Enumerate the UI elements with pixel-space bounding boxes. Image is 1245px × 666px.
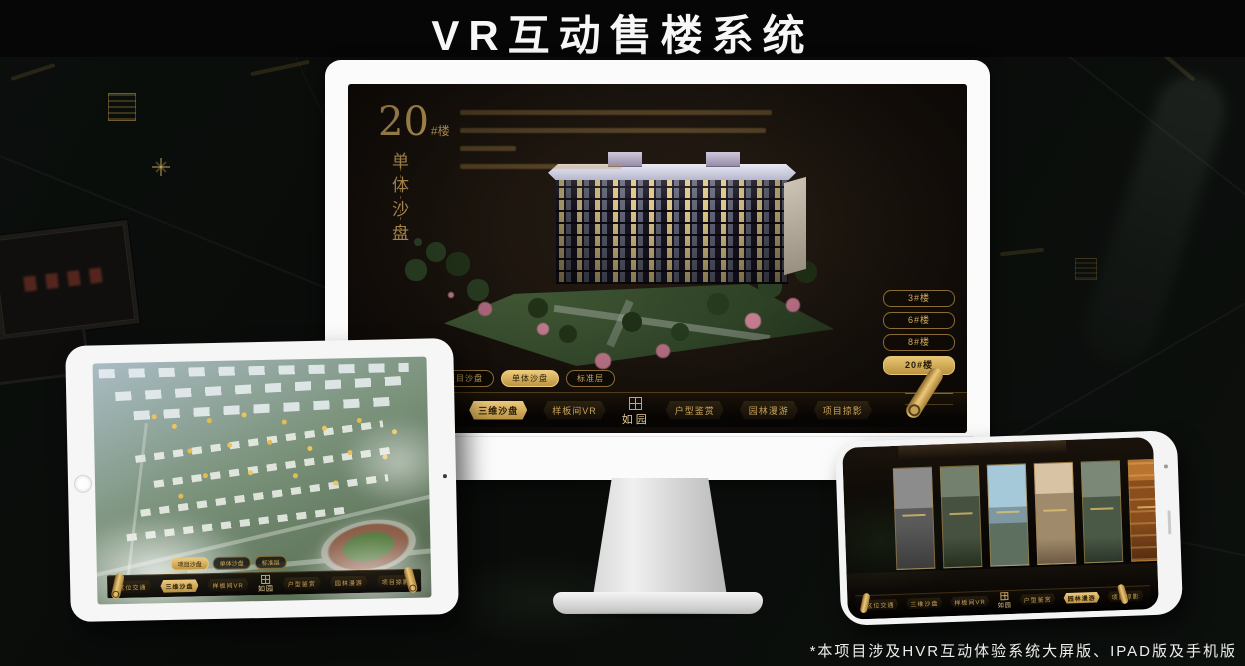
description-paragraph [460, 110, 772, 182]
phone-camera-dot [1164, 464, 1168, 468]
gallery-panel[interactable] [1128, 458, 1159, 561]
model-end-wall [784, 177, 806, 275]
phone-frame: 区位交通 三维沙盘 样板间VR 如园 户型鉴赏 园林漫游 项目掠影 [835, 430, 1183, 626]
scroll-handle-icon[interactable] [901, 367, 953, 425]
tab-single-sandbox[interactable]: 单体沙盘 [501, 370, 559, 387]
tablet-device: 项目沙盘 单体沙盘 标准层 区位交通 三维沙盘 样板间VR 如园 户型鉴赏 园林… [65, 338, 459, 622]
text-line-blur [460, 110, 772, 115]
phone-speaker-slit [1167, 510, 1171, 534]
brand-name: 如园 [622, 411, 650, 427]
compass-cross [151, 157, 171, 177]
building-selector: 3#楼 6#楼 8#楼 20#楼 [883, 290, 955, 375]
brand-logo: 如园 [997, 591, 1012, 608]
tablet-view-mode-tabs: 项目沙盘 单体沙盘 标准层 [171, 556, 287, 571]
aerial-building-row [133, 397, 393, 420]
nav-item-floorplans[interactable]: 户型鉴赏 [666, 401, 724, 420]
cloud-fog [338, 416, 432, 508]
nav-item-3d-sandbox[interactable]: 三维沙盘 [906, 597, 942, 609]
page-title: VR互动售楼系统 [0, 2, 1245, 63]
map-label-blur [1000, 248, 1044, 257]
model-flower-bushes [448, 292, 454, 298]
tablet-home-button[interactable] [74, 475, 92, 493]
nav-item-garden-roam[interactable]: 园林漫游 [330, 575, 368, 589]
brand-name: 如园 [998, 599, 1012, 608]
seal-icon [261, 574, 270, 583]
map-river [1075, 67, 1234, 374]
tab-standard-floor[interactable]: 标准层 [255, 556, 287, 570]
nav-item-showroom-vr[interactable]: 样板间VR [950, 595, 990, 607]
building-unit: #楼 [431, 124, 450, 138]
aerial-building-row [99, 363, 409, 378]
text-line-blur [460, 146, 516, 151]
brand-logo: 如园 [622, 397, 650, 427]
nav-item-garden-roam[interactable]: 园林漫游 [740, 401, 798, 420]
model-facade-windows [556, 176, 788, 284]
tab-standard-floor[interactable]: 标准层 [566, 370, 615, 387]
tablet-camera-dot [443, 474, 447, 478]
tablet-frame: 项目沙盘 单体沙盘 标准层 区位交通 三维沙盘 样板间VR 如园 户型鉴赏 园林… [65, 338, 459, 622]
interior-ceiling-beam [898, 440, 1066, 460]
building-number-markers[interactable] [152, 414, 157, 419]
monitor-stand-base [553, 592, 763, 614]
seal-icon [629, 397, 642, 410]
model-walkway [554, 305, 771, 342]
building-heading: 20#楼 单体沙盘 [378, 102, 450, 248]
gallery-panel[interactable] [1034, 462, 1077, 565]
brand-logo: 如园 [258, 574, 274, 593]
map-marker-icon [1075, 258, 1097, 280]
tab-project-sandbox[interactable]: 项目沙盘 [171, 557, 209, 571]
gallery-panel[interactable] [940, 465, 983, 568]
text-line-blur [460, 164, 622, 169]
compass-icon [152, 158, 170, 176]
nav-item-3d-sandbox[interactable]: 三维沙盘 [469, 401, 527, 420]
tab-single-sandbox[interactable]: 单体沙盘 [213, 556, 251, 570]
nav-item-project-gallery[interactable]: 项目掠影 [814, 401, 872, 420]
gallery-panels [893, 458, 1159, 570]
brand-name: 如园 [258, 583, 274, 593]
gallery-panel[interactable] [893, 467, 936, 570]
gallery-panel[interactable] [1081, 460, 1124, 563]
building-button-6[interactable]: 6#楼 [883, 312, 955, 329]
model-landscape-base [444, 284, 834, 366]
nav-item-floorplans[interactable]: 户型鉴赏 [283, 576, 321, 590]
footnote-text: *本项目涉及HVR互动体验系统大屏版、IPAD版及手机版 [810, 640, 1237, 661]
nav-item-garden-roam[interactable]: 园林漫游 [1063, 591, 1099, 603]
nav-item-3d-sandbox[interactable]: 三维沙盘 [160, 579, 198, 593]
tablet-screen: 项目沙盘 单体沙盘 标准层 区位交通 三维沙盘 样板间VR 如园 户型鉴赏 园林… [93, 357, 432, 605]
phone-screen: 区位交通 三维沙盘 样板间VR 如园 户型鉴赏 园林漫游 项目掠影 [842, 437, 1159, 620]
building-button-3[interactable]: 3#楼 [883, 290, 955, 307]
phone-device: 区位交通 三维沙盘 样板间VR 如园 户型鉴赏 园林漫游 项目掠影 [835, 430, 1183, 626]
nav-item-floorplans[interactable]: 户型鉴赏 [1019, 593, 1055, 605]
gallery-panel[interactable] [987, 463, 1030, 566]
monitor-stand-neck [593, 478, 727, 596]
nav-item-showroom-vr[interactable]: 样板间VR [543, 401, 606, 420]
nav-item-showroom-vr[interactable]: 样板间VR [207, 578, 249, 592]
framed-plaque [0, 220, 140, 340]
map-label-blur [11, 63, 56, 81]
model-walkway [606, 299, 633, 347]
building-button-8[interactable]: 8#楼 [883, 334, 955, 351]
text-line-blur [460, 128, 766, 133]
section-title-vertical: 单体沙盘 [386, 152, 411, 248]
poster-canvas: VR互动售楼系统 20#楼 单体沙盘 [0, 0, 1245, 666]
view-mode-tabs: 项目沙盘 单体沙盘 标准层 [436, 370, 615, 387]
map-marker-icon [108, 93, 136, 121]
aerial-building-row [115, 376, 405, 401]
building-number: 20#楼 [378, 102, 450, 142]
